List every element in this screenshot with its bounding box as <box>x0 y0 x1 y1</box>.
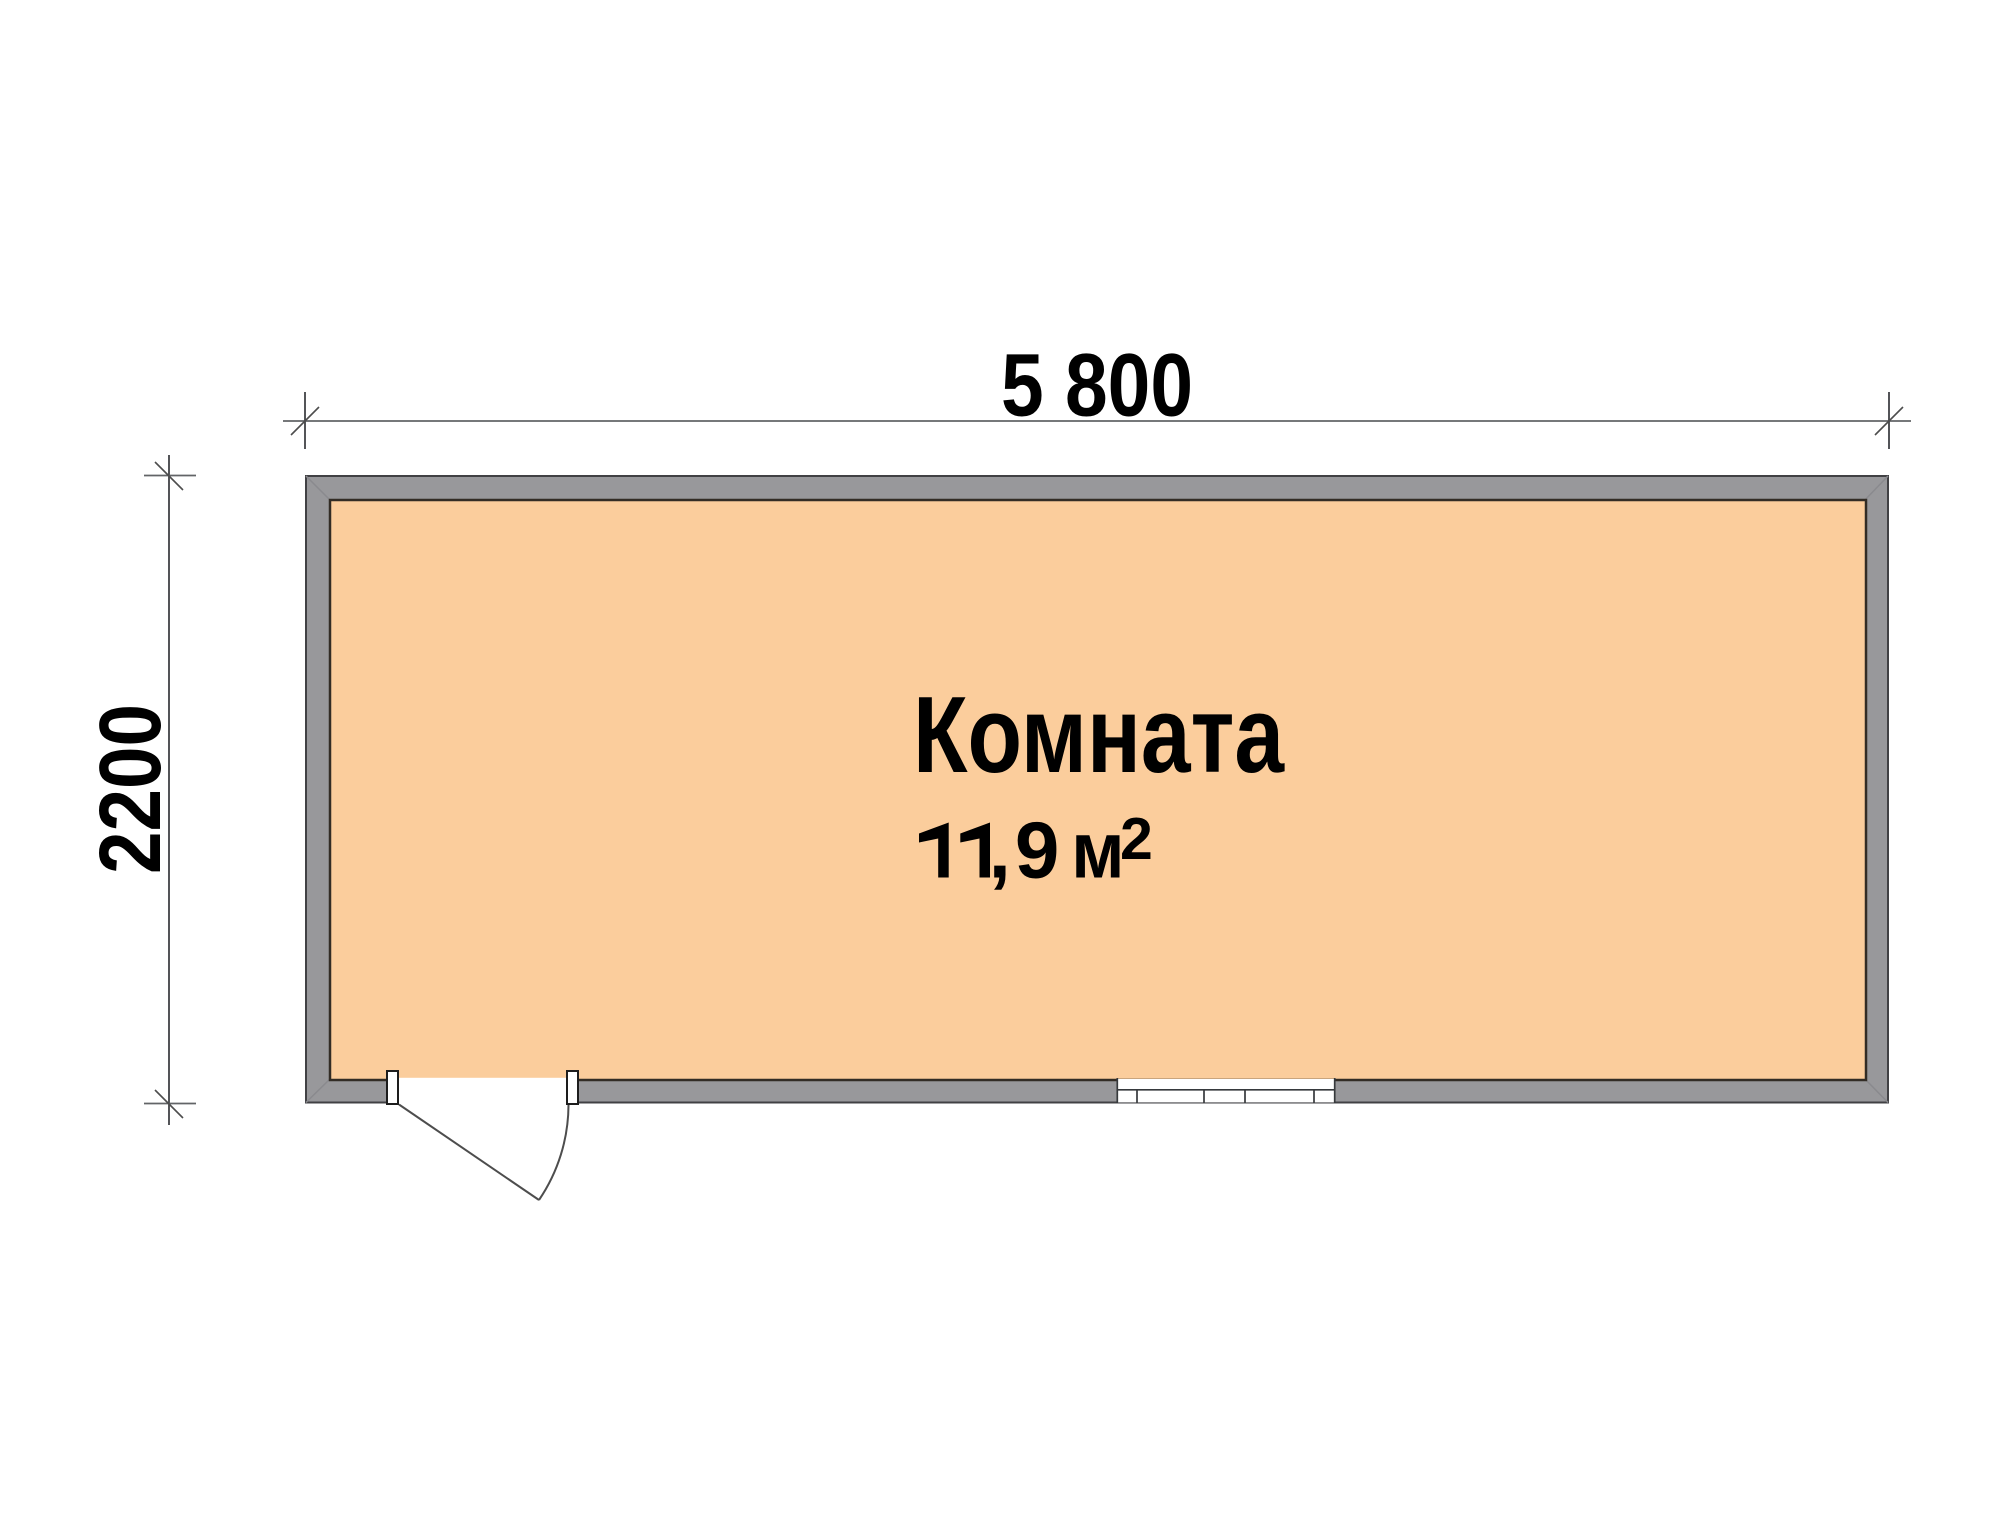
svg-text:м: м <box>1071 806 1124 895</box>
svg-text:2: 2 <box>1120 806 1153 872</box>
svg-text:Комната: Комната <box>913 674 1285 796</box>
svg-text:5 800: 5 800 <box>1001 335 1193 435</box>
svg-text:2200: 2200 <box>82 704 179 874</box>
svg-text:,: , <box>989 806 1011 895</box>
svg-text:9: 9 <box>1015 806 1060 895</box>
